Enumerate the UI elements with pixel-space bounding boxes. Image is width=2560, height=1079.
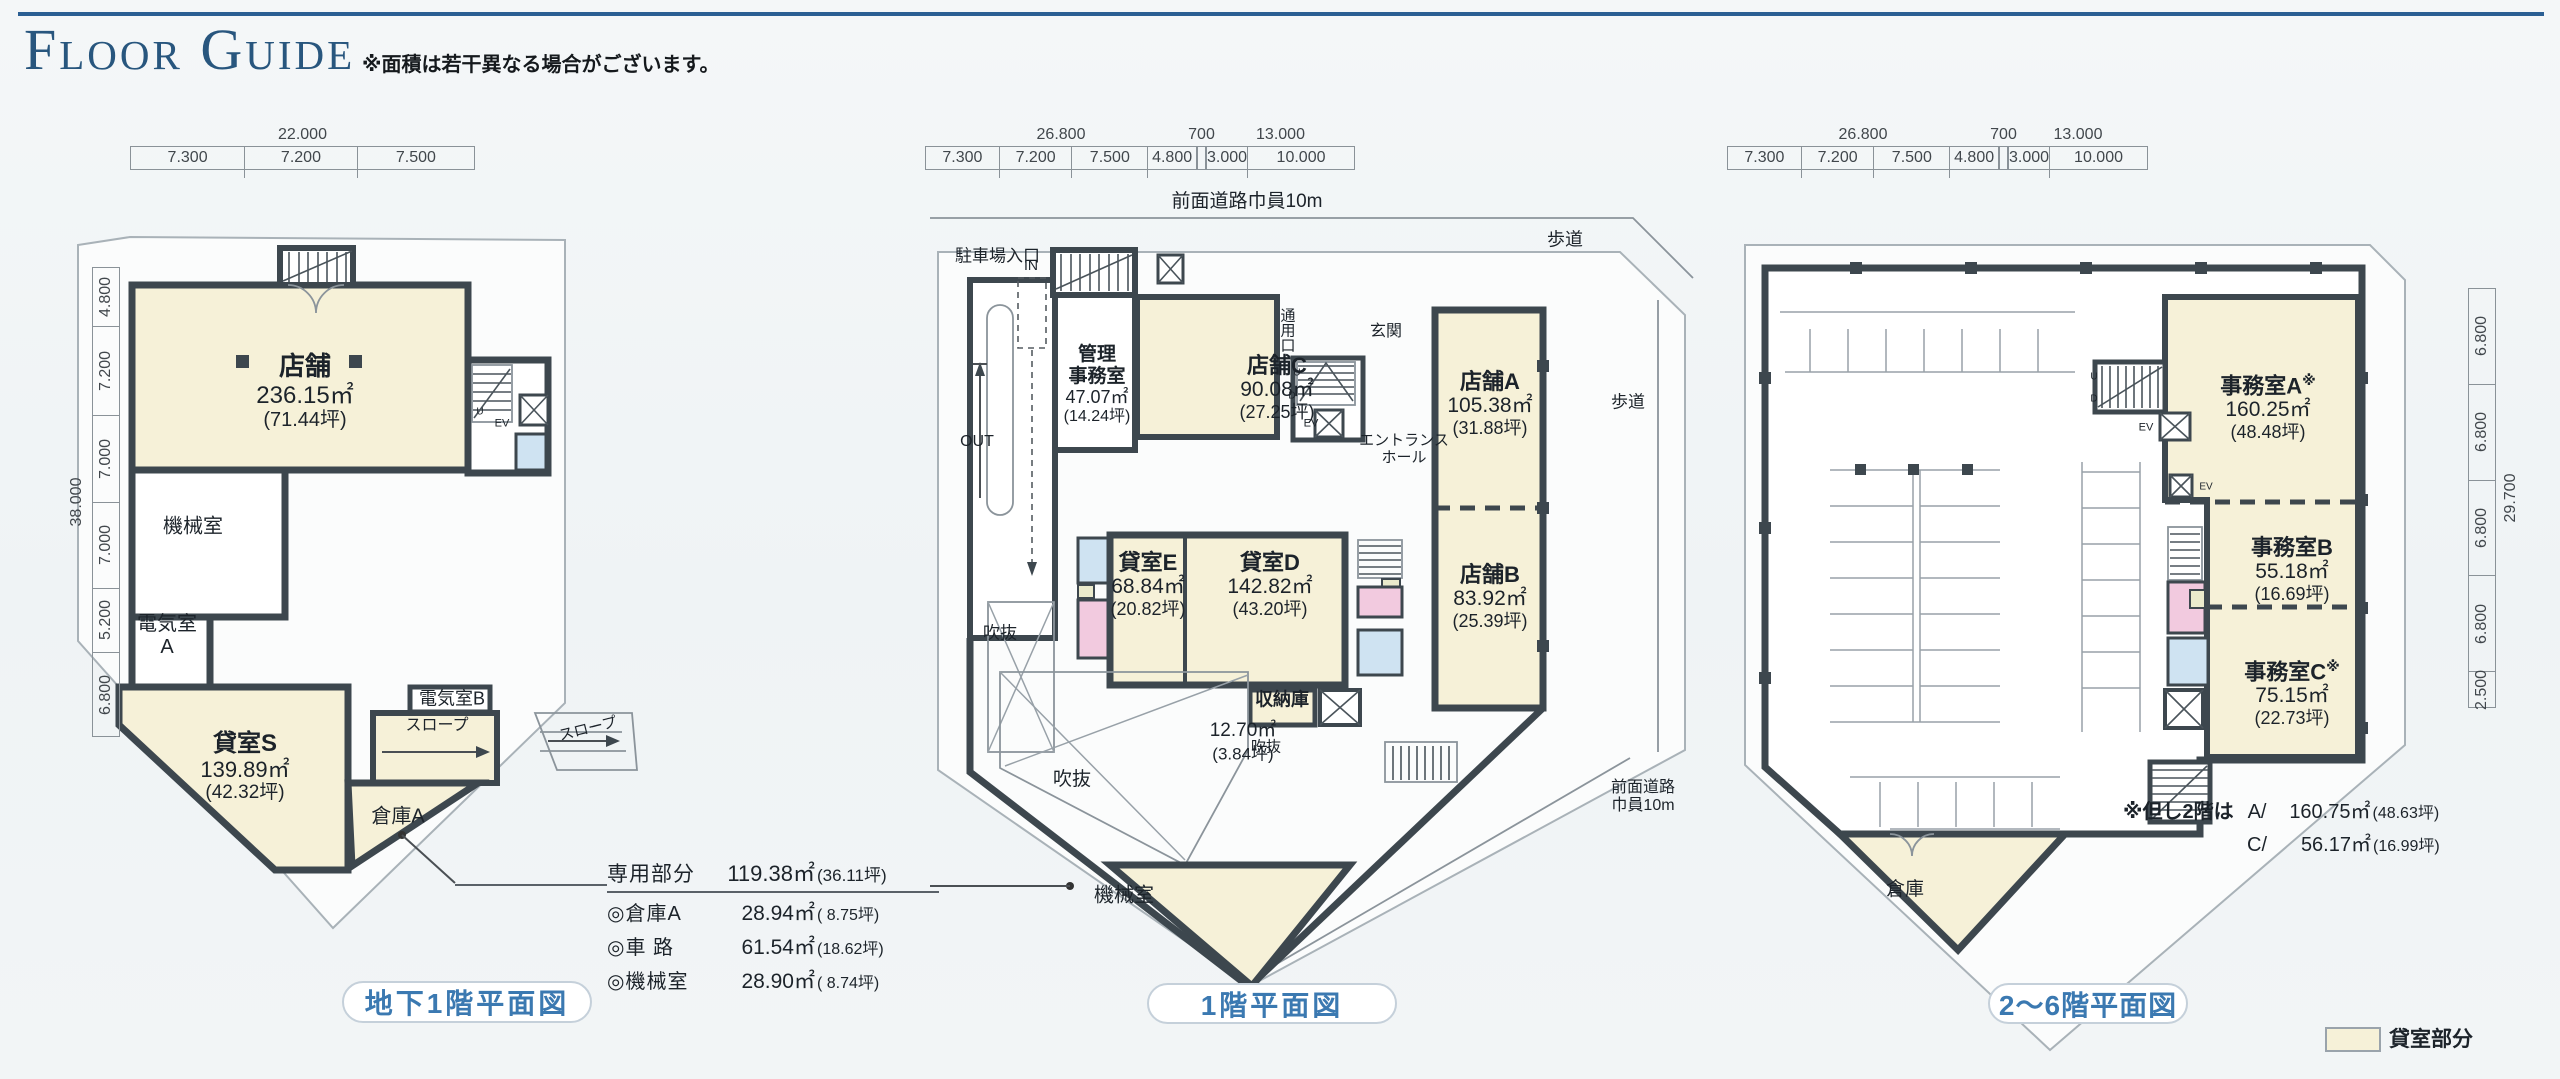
- room-name: 事務室A: [2220, 373, 2302, 398]
- annotation-item: ◎車 路 61.54㎡ (18.62坪): [607, 931, 939, 961]
- sidewalk-label-right: 歩道: [1611, 392, 1645, 411]
- label-line: エントランス: [1359, 432, 1449, 449]
- void-label: 吹抜: [1053, 769, 1091, 791]
- dim-value: 2.500: [2473, 670, 2491, 710]
- room-name: 店舗C: [1239, 353, 1314, 378]
- dim-value: 4.800: [1950, 147, 1998, 169]
- column: [236, 355, 249, 368]
- in-label: IN: [1024, 258, 1038, 274]
- plan1-dim-top: 22.000 7.300 7.200 7.500: [130, 124, 475, 170]
- dim-value: 6.800: [97, 675, 115, 715]
- column: [1537, 360, 1549, 372]
- room-area: 47.07㎡: [1064, 387, 1131, 408]
- wc-pink: [1078, 600, 1108, 658]
- right-core-1f: [1358, 540, 1402, 675]
- void-label: 吹抜: [983, 623, 1017, 642]
- annotation-connector-left: [455, 884, 607, 886]
- dim-value: 29.700: [2502, 474, 2520, 523]
- room-label-kikai-1f: 機械室: [1094, 885, 1154, 908]
- room-area: 55.18㎡: [2251, 560, 2333, 584]
- kikai-leader: [930, 882, 1074, 890]
- legend-label: 貸室部分: [2389, 1028, 2473, 1052]
- room-name: 事務室C: [2244, 659, 2326, 684]
- room-area: 236.15㎡: [256, 382, 353, 409]
- dim-total: 38.000: [62, 267, 92, 737]
- dim-value: 7.300: [1728, 147, 1802, 169]
- header-rule: [18, 12, 2544, 16]
- room-label-kanri: 管理 事務室 47.07㎡ (14.24坪): [1064, 344, 1131, 426]
- room-name: 貸室S: [200, 730, 289, 757]
- room-name: 電気室: [137, 613, 197, 636]
- plan3-drawing: [1730, 222, 2460, 1052]
- plan3-dim-top: 26.800 7.300 7.200 7.500 4.800 700 13.00…: [1727, 124, 2148, 170]
- annotation-value: 119.38㎡: [719, 856, 815, 888]
- room-tsubo: (31.88坪): [1447, 418, 1532, 439]
- annotation-name: 専用部分: [607, 858, 719, 888]
- entrance-hall-label: エントランス ホール: [1359, 432, 1449, 466]
- dim-value: 7.300: [926, 147, 1000, 169]
- dim-value: 7.500: [1874, 147, 1950, 169]
- dim-value: 700: [1990, 124, 2017, 146]
- dim-total: 700: [1999, 124, 2008, 146]
- dim-value: 5.200: [97, 600, 115, 640]
- label-line: 巾員10m: [1611, 797, 1675, 815]
- road-label-top: 前面道路巾員10m: [1172, 191, 1323, 213]
- room-note-mark: ※: [2326, 658, 2340, 674]
- room-label-tenpo-a: 店舗A 105.38㎡ (31.88坪): [1447, 369, 1532, 439]
- room-tsubo: (43.20坪): [1227, 599, 1312, 620]
- room-label-jimusho-b: 事務室B 55.18㎡ (16.69坪): [2251, 535, 2333, 605]
- dim-value: 38.000: [68, 478, 86, 527]
- wc-sink: [1078, 585, 1094, 598]
- room-area: 160.25㎡: [2220, 398, 2316, 422]
- elevator-mark: EV: [1304, 418, 1319, 431]
- void-label: 吹抜: [1251, 738, 1281, 755]
- dim-value: 7.200: [1000, 147, 1073, 169]
- dim-value: 7.500: [358, 147, 474, 169]
- annotation-name: ◎倉庫A: [607, 897, 719, 926]
- annotation-tsubo: ( 8.75坪): [817, 901, 879, 925]
- room-note-mark: ※: [2302, 372, 2316, 388]
- dim-value: 6.800: [2473, 412, 2491, 452]
- room-name: 店舗: [256, 352, 353, 382]
- room-kikai-b1: [132, 470, 285, 617]
- plan2-caption: 1階平面図: [1147, 983, 1397, 1024]
- room-label-tenpo-c: 店舗C 90.08㎡ (27.25坪): [1239, 353, 1314, 423]
- room-label-jimusho-c: 事務室C※ 75.15㎡ (22.73坪): [2244, 659, 2340, 729]
- second-floor-note: ※但し2階は A/ 160.75㎡ (48.63坪) C/ 56.17㎡ (16…: [2123, 795, 2440, 857]
- plan2-dim-top: 26.800 7.300 7.200 7.500 4.800 700 13.00…: [925, 124, 1355, 170]
- room-label-denki-b: 電気室B: [419, 689, 485, 710]
- room-area: 142.82㎡: [1227, 575, 1312, 599]
- caption-text: 1階平面図: [1201, 984, 1344, 1024]
- dim-value: 10.000: [1248, 147, 1354, 169]
- dim-value: 10.000: [2050, 147, 2147, 169]
- wc-sink: [2190, 590, 2205, 608]
- room-label-kashitsu-d: 貸室D 142.82㎡ (43.20坪): [1227, 550, 1312, 620]
- caption-text: 地下1階平面図: [365, 982, 570, 1022]
- dim-total: 13.000: [2008, 124, 2148, 146]
- room-name: 事務室B: [2251, 535, 2333, 560]
- stair-down-mark: D: [1288, 390, 1295, 401]
- note-tsubo: (48.63坪): [2372, 799, 2439, 823]
- room-name: 管理: [1064, 344, 1131, 366]
- exclusive-area-annotation: 専用部分 119.38㎡ (36.11坪) ◎倉庫A 28.94㎡ ( 8.75…: [607, 856, 939, 995]
- wc-blue: [1078, 538, 1108, 583]
- note-name: A/: [2248, 801, 2267, 824]
- dim-value: 700: [1188, 124, 1215, 146]
- note-row: ※但し2階は A/ 160.75㎡ (48.63坪): [2123, 795, 2440, 824]
- room-area: 105.38㎡: [1447, 394, 1532, 418]
- road-label-right: 前面道路 巾員10m: [1611, 779, 1675, 815]
- room-name: A: [137, 636, 197, 659]
- annotation-tsubo: ( 8.74坪): [817, 969, 879, 993]
- dim-value: 7.500: [1072, 147, 1148, 169]
- stair-up-mark: U: [2090, 371, 2097, 382]
- dim-value: 7.200: [97, 351, 115, 391]
- room-label-jimusho-a: 事務室A※ 160.25㎡ (48.48坪): [2220, 373, 2316, 443]
- room-label-souko-a: 倉庫A: [371, 806, 424, 829]
- annotation-item: ◎機械室 28.90㎡ ( 8.74坪): [607, 965, 939, 995]
- room-label-denki-a: 電気室 A: [137, 613, 197, 659]
- plan3-caption: 2〜6階平面図: [1988, 983, 2188, 1024]
- room-area: 90.08㎡: [1239, 378, 1314, 402]
- annotation-title-row: 専用部分 119.38㎡ (36.11坪): [607, 856, 939, 893]
- note-value: 56.17㎡: [2267, 828, 2371, 857]
- dim-value: 6.800: [2473, 508, 2491, 548]
- passage-label: 通用口: [1278, 308, 1295, 353]
- dim-total: 29.700: [2496, 288, 2526, 708]
- annotation-item: ◎倉庫A 28.94㎡ ( 8.75坪): [607, 897, 939, 927]
- note-name: C/: [2247, 834, 2267, 857]
- caption-text: 2〜6階平面図: [1999, 984, 2177, 1024]
- annotation-value: 61.54㎡: [719, 931, 815, 961]
- label-line: 前面道路: [1611, 779, 1675, 797]
- room-label-tenpo: 店舗 236.15㎡ (71.44坪): [256, 352, 353, 432]
- stair-up-mark: U: [1293, 367, 1300, 378]
- room-label-kashitsu-s: 貸室S 139.89㎡ (42.32坪): [200, 730, 289, 804]
- car-ramp-area: [970, 278, 1055, 638]
- label-line: ホール: [1359, 449, 1449, 466]
- annotation-tsubo: (18.62坪): [817, 935, 884, 959]
- room-tsubo: (20.82坪): [1110, 599, 1185, 620]
- annotation-name: ◎機械室: [607, 965, 719, 994]
- room-label-souko: 倉庫: [1886, 879, 1924, 901]
- wc-blue: [516, 434, 546, 470]
- dim-total: 13.000: [1206, 124, 1355, 146]
- room-name: 貸室E: [1110, 550, 1185, 575]
- dim-value: 6.800: [2473, 604, 2491, 644]
- room-name: 貸室D: [1227, 550, 1312, 575]
- room-tsubo: (25.39坪): [1452, 611, 1527, 632]
- dim-total: 700: [1197, 124, 1206, 146]
- room-label-kikai-b1: 機械室: [163, 516, 223, 539]
- elevator-mark: EV: [2199, 481, 2212, 492]
- stair-up-mark: U: [476, 406, 483, 417]
- annotation-name: ◎車 路: [607, 931, 719, 960]
- dim-value: 7.000: [97, 439, 115, 479]
- elevator-mark: EV: [2139, 422, 2154, 435]
- annotation-value: 28.94㎡: [719, 897, 815, 927]
- note-value: 160.75㎡: [2266, 795, 2370, 824]
- dim-total: 26.800: [925, 124, 1197, 146]
- legend-swatch-rental: [2325, 1027, 2381, 1052]
- column: [1537, 502, 1549, 514]
- dim-value: 7.200: [245, 147, 358, 169]
- dim-value: 3.000: [1207, 147, 1248, 169]
- sidewalk-label-top: 歩道: [1547, 230, 1583, 251]
- room-name: 店舗A: [1447, 369, 1532, 394]
- slope-label: スロープ: [405, 717, 468, 735]
- room-name: 事務室: [1064, 366, 1131, 388]
- note-row: C/ 56.17㎡ (16.99坪): [2247, 828, 2440, 857]
- dim-value: 3.000: [2009, 147, 2050, 169]
- room-label-tenpo-b: 店舗B 83.92㎡ (25.39坪): [1452, 562, 1527, 632]
- dim-value: 7.000: [97, 525, 115, 565]
- room-area: 83.92㎡: [1452, 587, 1527, 611]
- plan1-dim-left: 38.000 4.800 7.200 7.000 7.000 5.200 6.8…: [62, 267, 120, 737]
- dim-value: 4.800: [1148, 147, 1196, 169]
- entrance-label: 玄関: [1370, 323, 1402, 341]
- plan3-dim-right: 6.800 6.800 6.800 6.800 2.500 29.700: [2468, 288, 2526, 708]
- room-tsubo: (42.32坪): [200, 782, 289, 804]
- room-area: 75.15㎡: [2244, 684, 2340, 708]
- room-tsubo: (48.48坪): [2220, 422, 2316, 443]
- page-title: Floor Guide: [24, 16, 355, 83]
- page-note: ※面積は若干異なる場合がございます。: [362, 48, 719, 77]
- annotation-value: 28.90㎡: [719, 965, 815, 995]
- room-area: 139.89㎡: [200, 757, 289, 782]
- plan2-drawing: [930, 210, 1700, 1010]
- room-tsubo: (71.44坪): [256, 409, 353, 432]
- note-prefix: ※但し2階は: [2123, 795, 2234, 824]
- dim-total: 22.000: [130, 124, 475, 146]
- dim-total: 26.800: [1727, 124, 1999, 146]
- room-name: 店舗B: [1452, 562, 1527, 587]
- dim-value: 4.800: [97, 277, 115, 317]
- dim-value: 7.300: [131, 147, 245, 169]
- wc-blue: [2168, 638, 2208, 685]
- elevator-mark: EV: [495, 418, 510, 431]
- annotation-tsubo: (36.11坪): [817, 861, 887, 886]
- room-label-shunouko: 収納庫: [1255, 690, 1309, 711]
- dim-value: 7.200: [1802, 147, 1875, 169]
- dim-value: 6.800: [2473, 316, 2491, 356]
- plan1-drawing: [70, 222, 650, 972]
- column: [1537, 640, 1549, 652]
- note-tsubo: (16.99坪): [2373, 832, 2440, 856]
- plan1-caption: 地下1階平面図: [342, 981, 592, 1023]
- room-area: 68.84㎡: [1110, 575, 1185, 599]
- wc-pink: [1358, 587, 1402, 617]
- room-label-kashitsu-e: 貸室E 68.84㎡ (20.82坪): [1110, 550, 1185, 620]
- room-tsubo: (14.24坪): [1064, 408, 1131, 426]
- floor-guide-page: Floor Guide ※面積は若干異なる場合がございます。 22.000 7.…: [0, 0, 2560, 1079]
- room-tsubo: (16.69坪): [2251, 584, 2333, 605]
- wc-blue: [1358, 630, 1402, 675]
- stair-down-mark: D: [2090, 393, 2097, 404]
- room-tsubo: (22.73坪): [2244, 708, 2340, 729]
- out-label: OUT: [960, 433, 994, 451]
